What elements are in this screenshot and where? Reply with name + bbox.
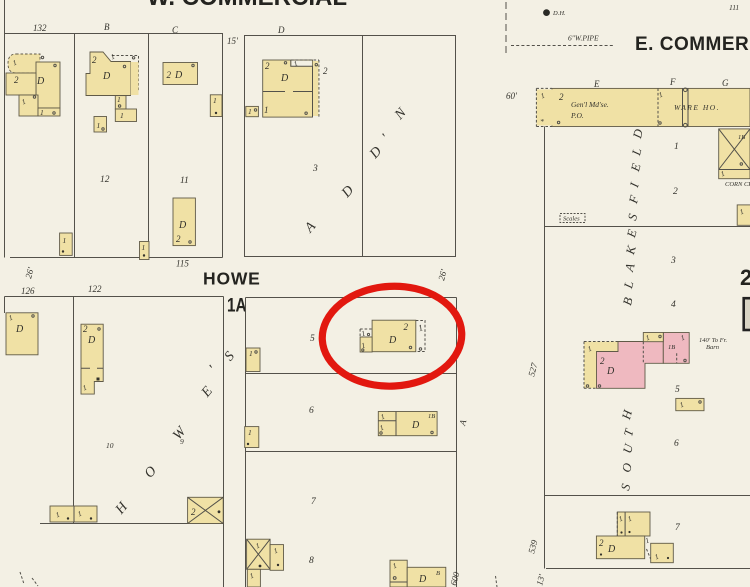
- svg-text:6: 6: [674, 439, 679, 449]
- svg-text:E: E: [593, 79, 600, 89]
- svg-text:2: 2: [559, 92, 564, 102]
- svg-text:10: 10: [106, 441, 114, 450]
- svg-text:H: H: [112, 499, 131, 518]
- svg-text:A: A: [622, 262, 638, 274]
- svg-text:2: 2: [176, 234, 181, 244]
- svg-text:13': 13': [534, 572, 547, 586]
- svg-text:6: 6: [309, 406, 314, 416]
- svg-text:D: D: [339, 183, 358, 201]
- svg-text:11: 11: [180, 176, 189, 186]
- svg-text:2: 2: [323, 66, 328, 76]
- svg-text:1: 1: [40, 108, 44, 117]
- svg-text:D: D: [87, 335, 96, 346]
- svg-text:2: 2: [600, 356, 605, 366]
- svg-text:D: D: [15, 324, 24, 335]
- svg-text:1: 1: [97, 121, 101, 130]
- svg-text:U: U: [620, 442, 636, 455]
- svg-text:': ': [207, 363, 221, 376]
- svg-text:O: O: [142, 464, 160, 481]
- svg-text:E: E: [198, 384, 216, 401]
- svg-text:26': 26': [23, 265, 36, 279]
- svg-text:1: 1: [213, 96, 217, 105]
- svg-text:1A: 1A: [227, 296, 247, 317]
- svg-text:H: H: [619, 408, 635, 422]
- svg-text:2: 2: [92, 55, 97, 65]
- svg-text:WARE HO.: WARE HO.: [674, 103, 720, 112]
- svg-text:I: I: [627, 180, 642, 189]
- svg-text:1: 1: [417, 322, 424, 333]
- svg-text:1: 1: [109, 52, 116, 62]
- svg-text:C: C: [172, 25, 179, 35]
- svg-text:1: 1: [120, 111, 124, 120]
- svg-text:2: 2: [599, 538, 604, 548]
- svg-text:K: K: [623, 244, 639, 257]
- svg-text:T: T: [621, 427, 637, 438]
- svg-text:Scales: Scales: [563, 216, 580, 223]
- svg-text:O: O: [619, 462, 635, 474]
- svg-text:5: 5: [675, 385, 680, 395]
- svg-text:26': 26': [436, 267, 449, 281]
- svg-text:G: G: [722, 78, 729, 88]
- svg-text:D: D: [280, 73, 289, 84]
- svg-text:P.O.: P.O.: [570, 111, 584, 120]
- svg-text:600: 600: [448, 570, 461, 586]
- svg-text:S: S: [222, 349, 238, 364]
- svg-text:1: 1: [248, 107, 252, 116]
- svg-text:L: L: [629, 147, 645, 158]
- svg-text:D: D: [174, 70, 183, 81]
- svg-text:1: 1: [117, 95, 121, 104]
- svg-text:D: D: [388, 335, 397, 346]
- svg-text:B: B: [436, 570, 440, 577]
- svg-text:E: E: [624, 228, 640, 240]
- svg-text:W: W: [170, 423, 190, 443]
- svg-text:1B: 1B: [738, 134, 745, 141]
- svg-text:2: 2: [265, 61, 270, 71]
- svg-text:1: 1: [674, 142, 679, 152]
- svg-text:A: A: [457, 418, 468, 427]
- svg-text:1B: 1B: [668, 344, 675, 351]
- svg-text:2: 2: [167, 70, 172, 80]
- svg-text:HOWE: HOWE: [203, 268, 261, 288]
- svg-text:Barn: Barn: [706, 344, 719, 351]
- svg-text:2: 2: [83, 324, 88, 334]
- svg-text:D: D: [630, 128, 646, 141]
- svg-text:1: 1: [249, 349, 253, 358]
- svg-text:2: 2: [191, 507, 196, 517]
- svg-text:1: 1: [63, 236, 67, 245]
- svg-text:8: 8: [309, 556, 314, 566]
- svg-text:W. COMMERCIAL: W. COMMERCIAL: [147, 0, 347, 11]
- svg-text:F: F: [669, 77, 676, 87]
- svg-text:2: 2: [404, 322, 409, 332]
- svg-text:7: 7: [675, 523, 681, 533]
- svg-text:527: 527: [526, 361, 539, 377]
- svg-text:2: 2: [14, 75, 19, 85]
- svg-text:6"W.PIPE: 6"W.PIPE: [568, 34, 599, 43]
- svg-text:126: 126: [21, 286, 35, 296]
- svg-text:2: 2: [740, 265, 750, 290]
- svg-text:E. COMMERCIAL: E. COMMERCIAL: [635, 34, 750, 55]
- svg-text:60': 60': [506, 91, 518, 101]
- svg-text:1B: 1B: [428, 413, 435, 420]
- svg-text:539: 539: [526, 538, 539, 554]
- svg-text:3: 3: [312, 164, 318, 174]
- svg-text:115: 115: [176, 259, 189, 269]
- svg-text:132: 132: [33, 23, 47, 33]
- svg-text:B: B: [620, 296, 636, 307]
- svg-text:S: S: [618, 482, 633, 492]
- svg-text:5: 5: [310, 334, 315, 344]
- svg-text:D: D: [36, 76, 45, 87]
- svg-text:1: 1: [248, 428, 252, 437]
- svg-text:L: L: [621, 280, 637, 291]
- svg-text:E: E: [628, 162, 644, 174]
- svg-text:15': 15': [227, 36, 239, 46]
- svg-text:1: 1: [264, 105, 269, 115]
- svg-text:D: D: [102, 71, 111, 82]
- svg-text:4: 4: [671, 300, 676, 310]
- svg-text:122: 122: [88, 284, 102, 294]
- svg-text:D: D: [367, 144, 386, 162]
- svg-text:2: 2: [673, 187, 678, 197]
- svg-text:D.H.: D.H.: [552, 10, 566, 17]
- svg-text:S: S: [625, 212, 640, 222]
- svg-text:D: D: [277, 25, 285, 35]
- svg-text:D: D: [606, 366, 615, 377]
- svg-text:7: 7: [311, 497, 317, 507]
- svg-text:111: 111: [729, 3, 739, 12]
- svg-text:Gen'l Md'se.: Gen'l Md'se.: [571, 100, 609, 109]
- svg-text:1: 1: [142, 243, 146, 252]
- svg-text:3: 3: [670, 256, 676, 266]
- svg-text:': ': [380, 131, 394, 144]
- svg-text:*: *: [540, 117, 544, 126]
- svg-text:B: B: [104, 22, 110, 32]
- svg-text:N: N: [392, 105, 411, 123]
- svg-text:CORN CR: CORN CR: [725, 181, 750, 188]
- svg-text:D: D: [178, 220, 187, 231]
- svg-text:140' To Fr.: 140' To Fr.: [699, 337, 727, 344]
- svg-text:D: D: [411, 420, 420, 431]
- svg-text:12: 12: [100, 175, 110, 185]
- svg-text:A: A: [302, 219, 320, 236]
- svg-text:D: D: [607, 544, 616, 555]
- svg-text:D: D: [418, 574, 427, 585]
- svg-text:F: F: [626, 194, 642, 206]
